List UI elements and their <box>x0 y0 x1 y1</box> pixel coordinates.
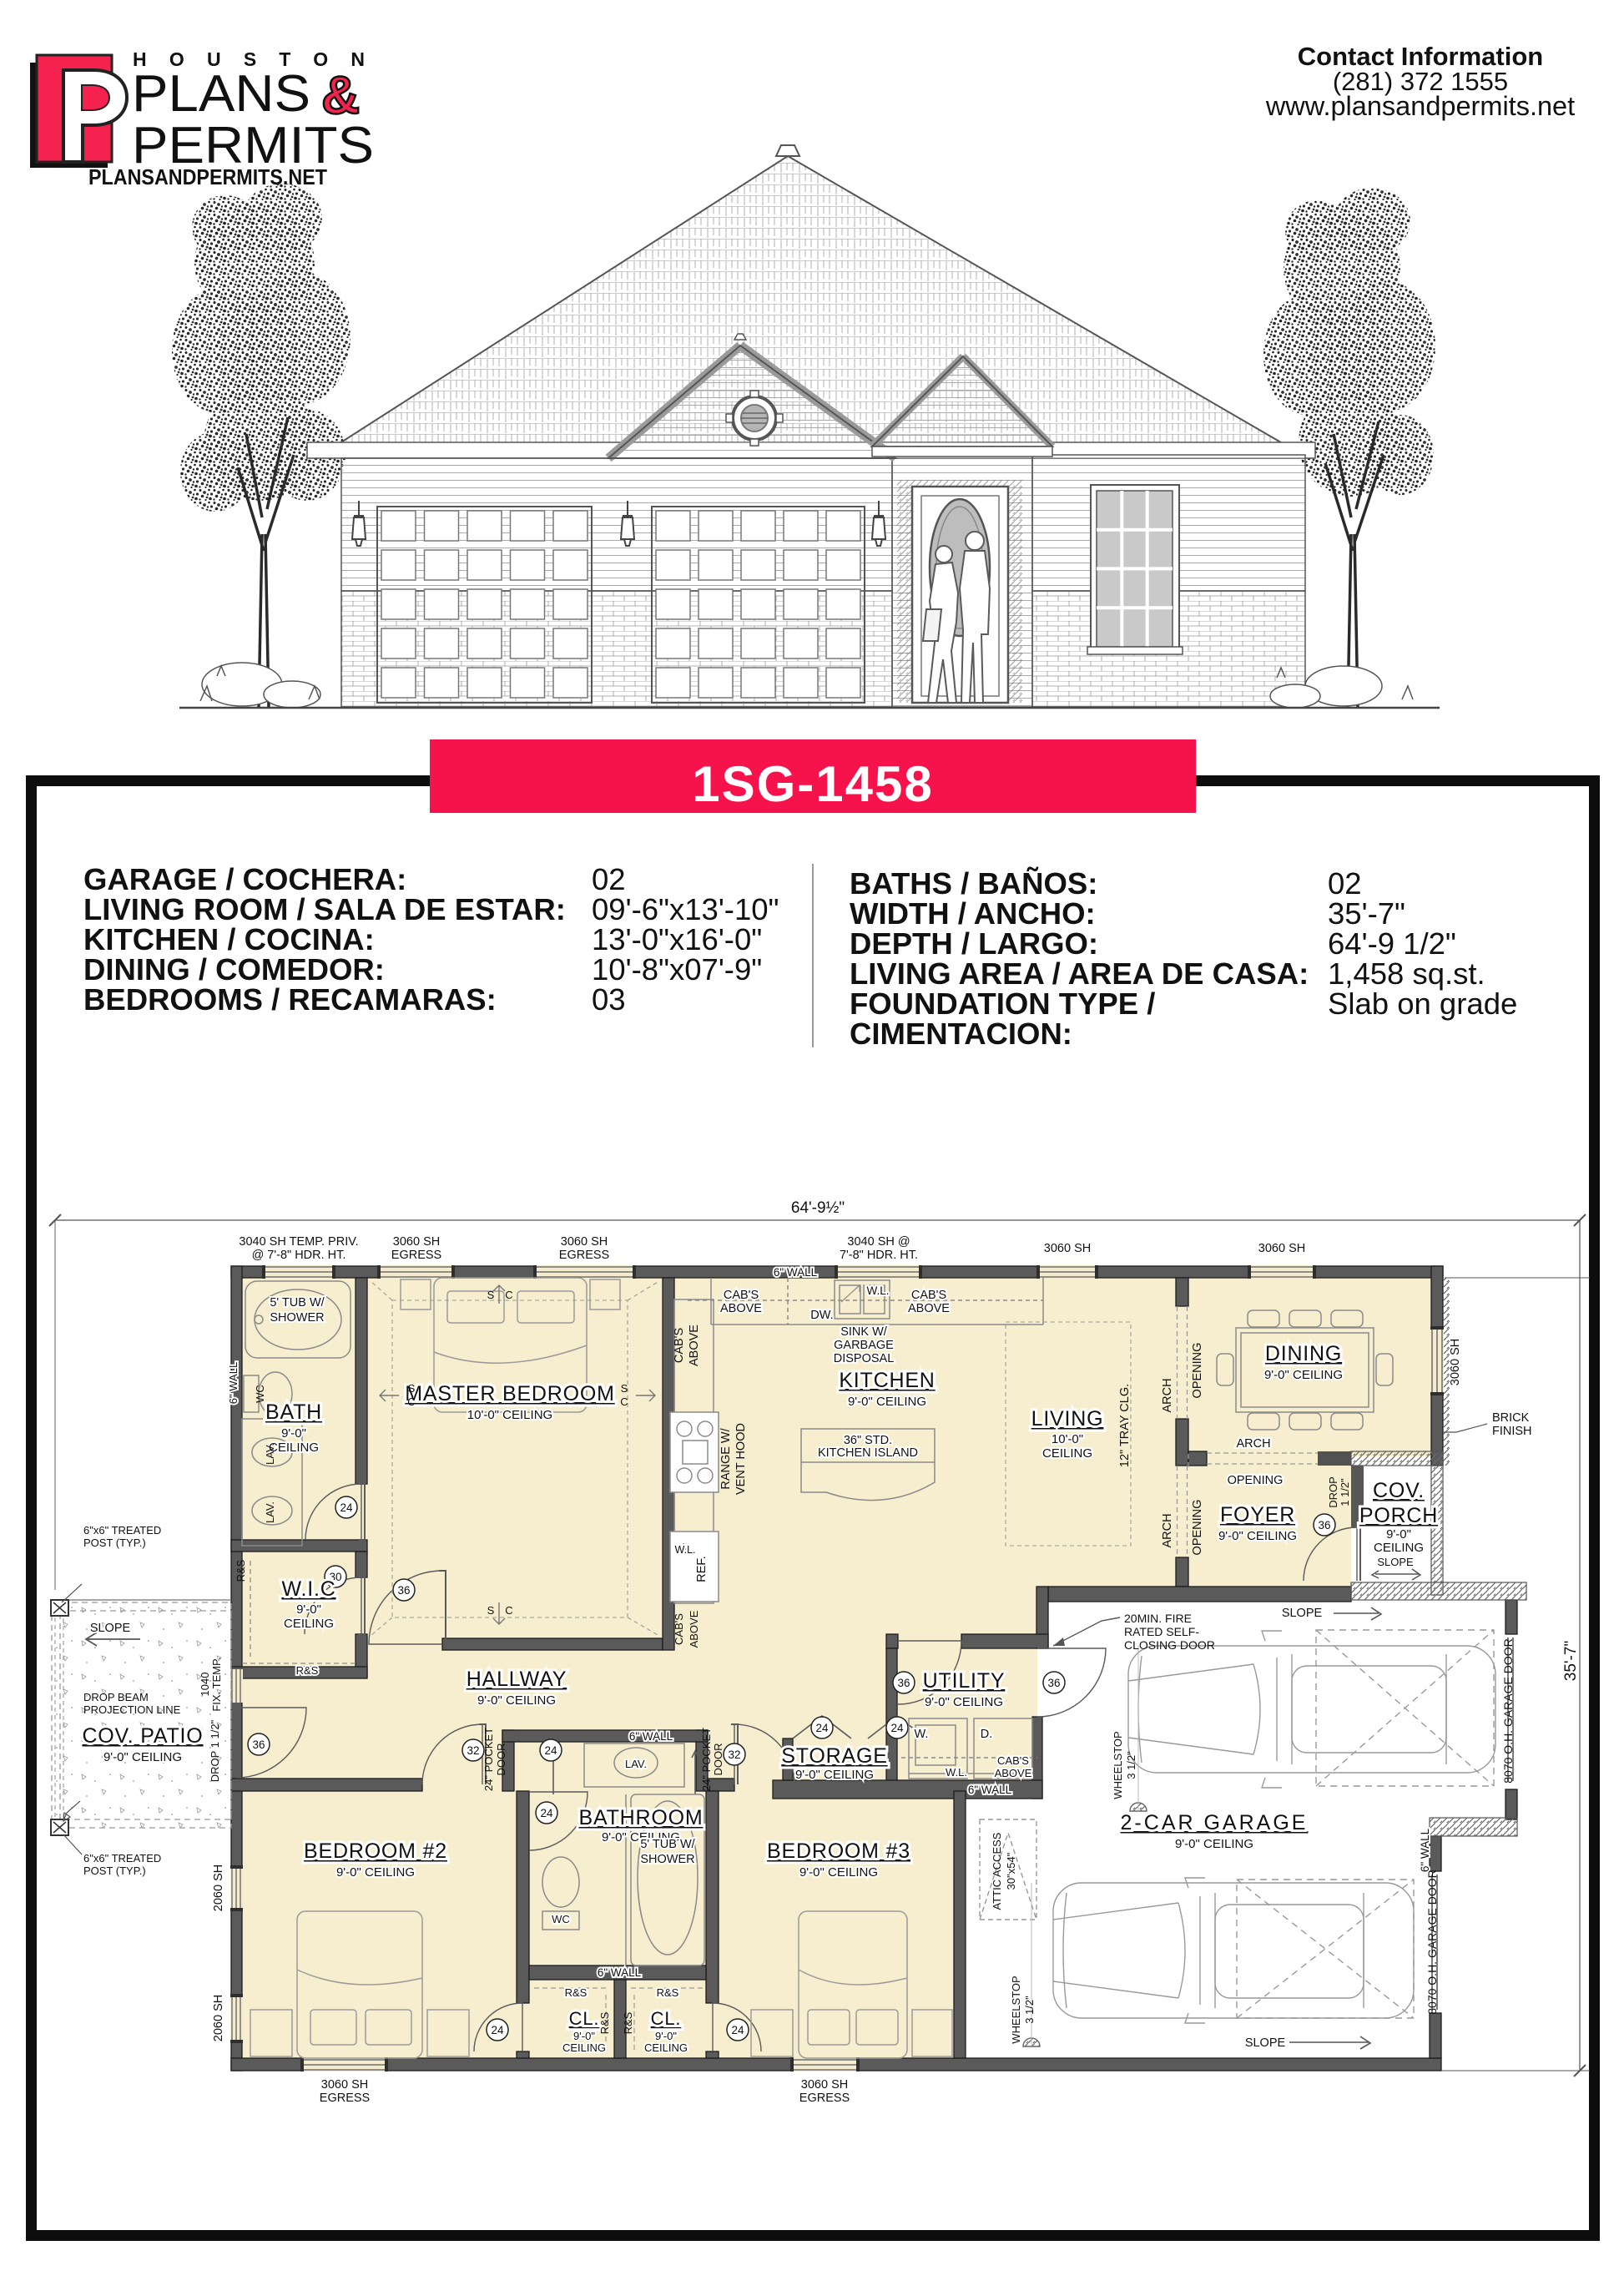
svg-text:FINISH: FINISH <box>1492 1425 1532 1438</box>
svg-text:OPENING: OPENING <box>1191 1500 1204 1556</box>
svg-text:KITCHEN / COCINA:: KITCHEN / COCINA: <box>83 922 375 956</box>
svg-text:SHOWER: SHOWER <box>640 1853 694 1866</box>
svg-text:S: S <box>408 1382 416 1395</box>
svg-text:1SG-1458: 1SG-1458 <box>692 756 934 812</box>
svg-text:BEDROOM #3: BEDROOM #3 <box>767 1839 910 1863</box>
svg-text:OPENING: OPENING <box>1228 1474 1284 1487</box>
svg-text:BATH: BATH <box>265 1400 322 1424</box>
svg-text:LAV.: LAV. <box>264 1501 276 1523</box>
svg-text:WC: WC <box>552 1913 570 1925</box>
svg-text:35'-7": 35'-7" <box>1562 1641 1580 1681</box>
svg-text:D.: D. <box>981 1728 993 1741</box>
svg-text:@ 7'-8" HDR. HT.: @ 7'-8" HDR. HT. <box>252 1249 346 1262</box>
svg-text:SLOPE: SLOPE <box>1282 1607 1323 1620</box>
svg-text:WHEELSTOP: WHEELSTOP <box>1010 1976 1022 2043</box>
svg-text:C: C <box>505 1604 512 1617</box>
svg-text:9'-0": 9'-0" <box>573 2030 595 2042</box>
svg-text:LIVING: LIVING <box>1031 1407 1104 1431</box>
svg-text:9'-0" CEILING: 9'-0" CEILING <box>795 1768 874 1782</box>
svg-text:24: 24 <box>890 1722 904 1734</box>
svg-text:24: 24 <box>731 2024 744 2036</box>
svg-text:FOUNDATION TYPE /: FOUNDATION TYPE / <box>850 987 1155 1021</box>
svg-text:ARCH: ARCH <box>1161 1378 1174 1412</box>
svg-text:SLOPE: SLOPE <box>1377 1556 1414 1568</box>
svg-text:WC: WC <box>254 1385 266 1403</box>
svg-text:CAB'S: CAB'S <box>673 1328 686 1363</box>
svg-text:5' TUB W/: 5' TUB W/ <box>270 1296 325 1309</box>
svg-text:6" WALL: 6" WALL <box>968 1784 1012 1796</box>
svg-text:PORCH: PORCH <box>1359 1504 1438 1527</box>
svg-text:DISPOSAL: DISPOSAL <box>834 1352 895 1365</box>
svg-text:GARBAGE: GARBAGE <box>834 1339 894 1352</box>
svg-text:DROP: DROP <box>1327 1476 1339 1508</box>
svg-text:HALLWAY: HALLWAY <box>467 1668 567 1691</box>
svg-text:36: 36 <box>897 1677 910 1689</box>
svg-text:W.I.C: W.I.C <box>281 1577 335 1601</box>
svg-text:WHEELSTOP: WHEELSTOP <box>1112 1731 1124 1799</box>
svg-text:36: 36 <box>397 1584 410 1597</box>
svg-text:9'-0": 9'-0" <box>1386 1527 1411 1542</box>
svg-text:9'-0" CEILING: 9'-0" CEILING <box>799 1865 878 1880</box>
svg-text:SLOPE: SLOPE <box>90 1622 131 1635</box>
svg-text:24" POCKET: 24" POCKET <box>482 1728 495 1791</box>
svg-text:3060 SH: 3060 SH <box>1449 1339 1462 1385</box>
svg-text:PROJECTION LINE: PROJECTION LINE <box>83 1703 181 1716</box>
svg-text:1,458 sq.st.: 1,458 sq.st. <box>1328 956 1485 991</box>
svg-text:64'-9 1/2": 64'-9 1/2" <box>1328 926 1456 961</box>
svg-text:02: 02 <box>1328 866 1362 901</box>
svg-text:6"x6" TREATED: 6"x6" TREATED <box>83 1852 161 1865</box>
svg-text:R&S: R&S <box>296 1664 319 1677</box>
svg-text:32: 32 <box>728 1748 740 1761</box>
svg-text:6" WALL: 6" WALL <box>629 1730 673 1743</box>
svg-text:CEILING: CEILING <box>644 2041 688 2054</box>
svg-text:30"x54": 30"x54" <box>1005 1852 1017 1890</box>
svg-text:COV.: COV. <box>1373 1479 1425 1502</box>
svg-text:LIVING ROOM / SALA DE ESTAR:: LIVING ROOM / SALA DE ESTAR: <box>83 892 566 926</box>
svg-text:ARCH: ARCH <box>1161 1513 1174 1547</box>
svg-text:9'-0" CEILING: 9'-0" CEILING <box>336 1865 415 1880</box>
svg-text:DROP BEAM: DROP BEAM <box>83 1691 149 1703</box>
svg-text:24: 24 <box>540 1807 553 1819</box>
svg-text:CAB'S: CAB'S <box>911 1289 946 1302</box>
svg-text:9'-0" CEILING: 9'-0" CEILING <box>1218 1529 1297 1543</box>
svg-text:R&S: R&S <box>622 2011 634 2034</box>
svg-text:W.L.: W.L. <box>674 1544 695 1556</box>
svg-text:24" POCKET: 24" POCKET <box>700 1728 713 1791</box>
svg-text:RATED SELF-: RATED SELF- <box>1124 1625 1199 1638</box>
svg-text:ABOVE: ABOVE <box>720 1302 762 1315</box>
svg-text:R&S: R&S <box>565 1986 588 1999</box>
svg-text:1040: 1040 <box>199 1673 211 1697</box>
svg-text:CEILING: CEILING <box>284 1617 334 1631</box>
svg-text:DOOR: DOOR <box>495 1743 507 1776</box>
svg-text:POST (TYP.): POST (TYP.) <box>83 1537 146 1549</box>
svg-text:9'-0" CEILING: 9'-0" CEILING <box>925 1695 1003 1709</box>
svg-text:CAB'S: CAB'S <box>997 1754 1029 1767</box>
svg-text:2060 SH: 2060 SH <box>212 1995 225 2041</box>
svg-text:CAB'S: CAB'S <box>724 1289 759 1302</box>
svg-text:R&S: R&S <box>598 2011 611 2034</box>
svg-text:2-CAR GARAGE: 2-CAR GARAGE <box>1121 1811 1309 1834</box>
svg-text:35'-7": 35'-7" <box>1328 896 1405 931</box>
svg-text:POST (TYP.): POST (TYP.) <box>83 1865 146 1877</box>
svg-text:REF.: REF. <box>695 1556 709 1582</box>
svg-text:BATHS / BAÑOS:: BATHS / BAÑOS: <box>850 865 1097 901</box>
svg-text:R&S: R&S <box>235 1559 247 1582</box>
svg-text:9'-0": 9'-0" <box>296 1602 321 1617</box>
svg-text:12" TRAY CLG.: 12" TRAY CLG. <box>1118 1384 1132 1467</box>
svg-text:9'-0" CEILING: 9'-0" CEILING <box>1175 1837 1253 1851</box>
svg-text:S: S <box>487 1289 495 1301</box>
svg-text:WIDTH / ANCHO:: WIDTH / ANCHO: <box>850 896 1096 931</box>
svg-text:ABOVE: ABOVE <box>995 1767 1032 1779</box>
svg-text:03: 03 <box>592 982 626 1017</box>
svg-text:DEPTH / LARGO:: DEPTH / LARGO: <box>850 926 1098 961</box>
svg-text:3060 SH: 3060 SH <box>1258 1242 1305 1255</box>
svg-text:8070 O.H. GARAGE DOOR: 8070 O.H. GARAGE DOOR <box>1501 1638 1515 1784</box>
svg-text:6" WALL: 6" WALL <box>1419 1828 1431 1872</box>
svg-text:8070 O.H. GARAGE DOOR: 8070 O.H. GARAGE DOOR <box>1425 1870 1439 2015</box>
svg-text:FOYER: FOYER <box>1220 1503 1295 1526</box>
svg-text:VENT HOOD: VENT HOOD <box>734 1423 748 1495</box>
svg-text:24: 24 <box>544 1744 557 1757</box>
svg-text:EGRESS: EGRESS <box>799 2092 850 2105</box>
svg-text:24: 24 <box>815 1722 829 1734</box>
svg-text:R&S: R&S <box>657 1986 679 1999</box>
svg-text:KITCHEN ISLAND: KITCHEN ISLAND <box>818 1446 918 1460</box>
svg-text:24: 24 <box>491 2024 504 2036</box>
svg-text:CIMENTACION:: CIMENTACION: <box>850 1017 1072 1051</box>
svg-text:6"x6" TREATED: 6"x6" TREATED <box>83 1524 161 1537</box>
svg-text:9'-0" CEILING: 9'-0" CEILING <box>477 1693 556 1708</box>
svg-text:UTILITY: UTILITY <box>923 1669 1006 1693</box>
svg-text:DROP 1 1/2": DROP 1 1/2" <box>209 1719 221 1782</box>
svg-text:2060 SH: 2060 SH <box>212 1865 225 1911</box>
svg-text:COV. PATIO: COV. PATIO <box>82 1724 203 1748</box>
svg-text:CLOSING DOOR: CLOSING DOOR <box>1124 1638 1215 1652</box>
svg-text:3060 SH: 3060 SH <box>393 1235 440 1249</box>
svg-text:DINING / COMEDOR:: DINING / COMEDOR: <box>83 952 385 987</box>
svg-text:BATHROOM: BATHROOM <box>579 1806 704 1829</box>
svg-text:ARCH: ARCH <box>1236 1437 1270 1451</box>
svg-text:ABOVE: ABOVE <box>908 1302 950 1315</box>
svg-text:CEILING: CEILING <box>562 2041 606 2054</box>
svg-text:36: 36 <box>252 1738 265 1751</box>
svg-text:DOOR: DOOR <box>712 1743 724 1776</box>
svg-text:C: C <box>407 1395 415 1408</box>
svg-text:9'-0": 9'-0" <box>655 2030 677 2042</box>
svg-text:36: 36 <box>1047 1677 1060 1689</box>
svg-text:36" STD.: 36" STD. <box>844 1434 892 1447</box>
svg-text:KITCHEN: KITCHEN <box>839 1369 935 1392</box>
svg-text:1 1/2": 1 1/2" <box>1339 1478 1351 1506</box>
svg-text:6" WALL: 6" WALL <box>774 1266 818 1279</box>
svg-text:LAV.: LAV. <box>264 1443 276 1465</box>
svg-text:24: 24 <box>340 1501 353 1514</box>
svg-text:STORAGE: STORAGE <box>781 1744 887 1768</box>
svg-text:C: C <box>505 1289 512 1301</box>
svg-text:3060 SH: 3060 SH <box>561 1235 608 1249</box>
svg-text:CL.: CL. <box>651 2008 682 2029</box>
svg-text:3060 SH: 3060 SH <box>801 2078 848 2092</box>
svg-text:3060 SH: 3060 SH <box>321 2078 368 2092</box>
svg-text:PLANS: PLANS <box>132 65 310 123</box>
svg-text:OPENING: OPENING <box>1191 1343 1204 1399</box>
svg-text:5' TUB W/: 5' TUB W/ <box>640 1838 695 1851</box>
svg-text:S: S <box>487 1604 495 1617</box>
svg-text:EGRESS: EGRESS <box>391 1249 441 1262</box>
svg-text:CL.: CL. <box>569 2008 600 2029</box>
svg-text:W.L.: W.L. <box>946 1766 967 1779</box>
svg-text:20MIN. FIRE: 20MIN. FIRE <box>1124 1612 1192 1625</box>
svg-text:W.L.: W.L. <box>866 1284 889 1297</box>
svg-text:9'-0" CEILING: 9'-0" CEILING <box>103 1750 182 1764</box>
svg-text:3060 SH: 3060 SH <box>1044 1242 1091 1255</box>
svg-text:09'-6"x13'-10": 09'-6"x13'-10" <box>592 892 779 926</box>
svg-text:9'-0": 9'-0" <box>281 1426 306 1441</box>
svg-text:7'-8" HDR. HT.: 7'-8" HDR. HT. <box>840 1249 918 1262</box>
svg-text:10'-0": 10'-0" <box>1052 1432 1083 1446</box>
svg-text:3040 SH @: 3040 SH @ <box>847 1235 910 1249</box>
svg-text:EGRESS: EGRESS <box>320 2092 370 2105</box>
svg-text:3040 SH TEMP. PRIV.: 3040 SH TEMP. PRIV. <box>239 1235 358 1249</box>
svg-text:C: C <box>620 1395 628 1408</box>
svg-text:FIX. TEMP.: FIX. TEMP. <box>210 1657 223 1711</box>
svg-text:MASTER BEDROOM: MASTER BEDROOM <box>405 1382 615 1405</box>
svg-text:ABOVE: ABOVE <box>688 1610 700 1648</box>
svg-text:10'-8"x07'-9": 10'-8"x07'-9" <box>592 952 762 987</box>
svg-text:Slab on grade: Slab on grade <box>1328 987 1517 1021</box>
svg-text:10'-0" CEILING: 10'-0" CEILING <box>467 1408 552 1422</box>
svg-text:CEILING: CEILING <box>1042 1446 1092 1461</box>
svg-text:DW.: DW. <box>810 1309 833 1322</box>
svg-text:CAB'S: CAB'S <box>673 1613 685 1645</box>
svg-text:02: 02 <box>592 862 626 896</box>
svg-text:ATTIC ACCESS: ATTIC ACCESS <box>991 1832 1003 1910</box>
svg-text:64'-9½": 64'-9½" <box>791 1199 845 1217</box>
svg-text:GARAGE / COCHERA:: GARAGE / COCHERA: <box>83 862 406 896</box>
svg-text:DINING: DINING <box>1265 1342 1342 1365</box>
svg-text:W.: W. <box>915 1728 929 1741</box>
svg-text:SINK W/: SINK W/ <box>840 1325 888 1339</box>
svg-text:6" WALL: 6" WALL <box>227 1362 240 1404</box>
svg-text:www.plansandpermits.net: www.plansandpermits.net <box>1265 91 1575 121</box>
svg-text:13'-0"x16'-0": 13'-0"x16'-0" <box>592 922 762 956</box>
svg-text:3 1/2": 3 1/2" <box>1023 1996 1036 2024</box>
svg-text:9'-0" CEILING: 9'-0" CEILING <box>1264 1368 1343 1382</box>
svg-text:SLOPE: SLOPE <box>1245 2036 1286 2050</box>
svg-text:CEILING: CEILING <box>1374 1541 1424 1555</box>
svg-text:6" WALL: 6" WALL <box>598 1966 642 1979</box>
svg-text:BRICK: BRICK <box>1492 1411 1530 1425</box>
svg-text:RANGE W/: RANGE W/ <box>719 1427 733 1489</box>
svg-text:SHOWER: SHOWER <box>270 1311 324 1325</box>
svg-text:36: 36 <box>1318 1519 1330 1532</box>
svg-text:LAV.: LAV. <box>625 1758 647 1770</box>
svg-text:ABOVE: ABOVE <box>688 1325 701 1366</box>
svg-text:S: S <box>621 1382 628 1395</box>
svg-text:EGRESS: EGRESS <box>559 1249 609 1262</box>
svg-text:BEDROOMS / RECAMARAS:: BEDROOMS / RECAMARAS: <box>83 982 497 1017</box>
svg-text:LIVING AREA / AREA DE CASA:: LIVING AREA / AREA DE CASA: <box>850 956 1309 991</box>
svg-text:9'-0" CEILING: 9'-0" CEILING <box>848 1395 926 1409</box>
svg-text:32: 32 <box>467 1744 479 1757</box>
svg-text:3 1/2": 3 1/2" <box>1125 1751 1137 1779</box>
svg-text:BEDROOM #2: BEDROOM #2 <box>304 1839 447 1863</box>
